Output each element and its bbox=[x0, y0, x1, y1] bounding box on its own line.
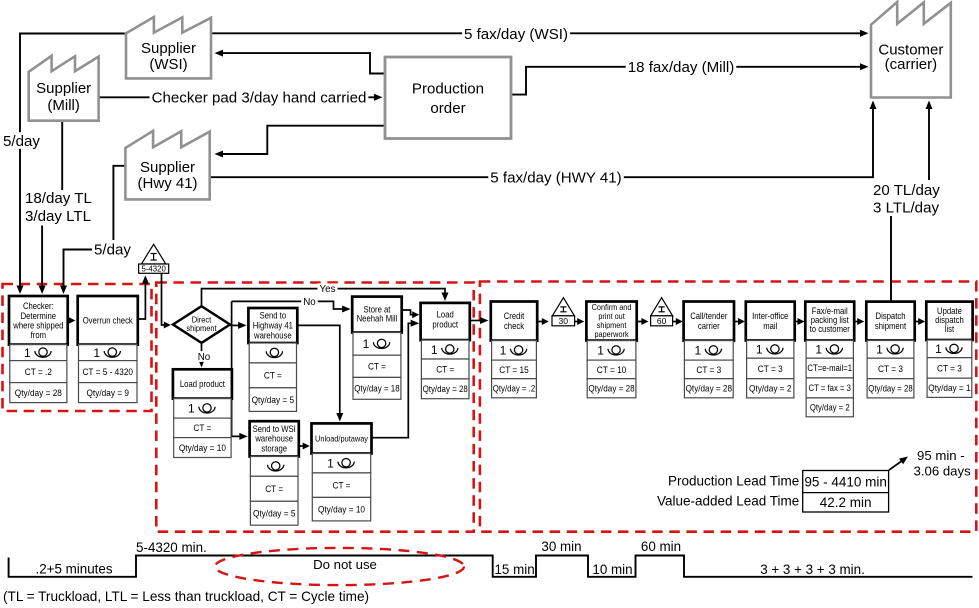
svg-text:check: check bbox=[504, 321, 525, 331]
svg-text:CT = 3: CT = 3 bbox=[937, 363, 962, 374]
svg-text:CT =: CT = bbox=[264, 371, 282, 382]
svg-text:Production Lead Time: Production Lead Time bbox=[668, 474, 799, 489]
svg-text:list: list bbox=[945, 324, 955, 334]
svg-text:1: 1 bbox=[93, 346, 100, 360]
svg-text:Value-added Lead Time: Value-added Lead Time bbox=[657, 494, 799, 509]
svg-text:Load product: Load product bbox=[180, 379, 225, 389]
svg-text:(Mill): (Mill) bbox=[47, 97, 79, 114]
svg-text:18 fax/day (Mill): 18 fax/day (Mill) bbox=[628, 59, 735, 76]
svg-text:.2+5 minutes: .2+5 minutes bbox=[35, 561, 112, 576]
svg-text:Qty/day = 2: Qty/day = 2 bbox=[810, 403, 850, 413]
svg-text:CT = .2: CT = .2 bbox=[25, 367, 52, 378]
svg-text:Send to: Send to bbox=[260, 311, 287, 321]
svg-text:30 min: 30 min bbox=[541, 539, 581, 554]
svg-text:Qty/day = 10: Qty/day = 10 bbox=[179, 443, 226, 454]
svg-text:5/day: 5/day bbox=[94, 241, 131, 258]
svg-text:3 LTL/day: 3 LTL/day bbox=[873, 199, 939, 216]
svg-text:(Hwy 41): (Hwy 41) bbox=[138, 175, 198, 192]
svg-text:mail: mail bbox=[763, 321, 777, 331]
svg-text:5/day: 5/day bbox=[3, 133, 40, 150]
svg-text:storage: storage bbox=[261, 444, 287, 454]
svg-text:CT = 3: CT = 3 bbox=[878, 364, 903, 375]
svg-text:Neehah Mill: Neehah Mill bbox=[357, 314, 398, 324]
svg-text:carrier: carrier bbox=[698, 321, 720, 331]
svg-text:CT =: CT = bbox=[333, 481, 351, 492]
svg-text:Production: Production bbox=[412, 80, 484, 97]
svg-text:1: 1 bbox=[694, 344, 701, 358]
svg-text:(WSI): (WSI) bbox=[149, 56, 187, 73]
svg-text:(carrier): (carrier) bbox=[885, 56, 938, 73]
svg-text:1: 1 bbox=[500, 344, 507, 358]
svg-text:Supplier: Supplier bbox=[141, 40, 196, 57]
svg-text:CT =: CT = bbox=[193, 423, 211, 434]
svg-text:1: 1 bbox=[327, 456, 334, 470]
svg-text:(TL = Truckload, LTL = Less th: (TL = Truckload, LTL = Less than trucklo… bbox=[3, 589, 369, 604]
svg-text:Credit: Credit bbox=[504, 311, 525, 321]
svg-text:20 TL/day: 20 TL/day bbox=[873, 182, 940, 199]
svg-text:1: 1 bbox=[597, 344, 604, 358]
svg-text:CT =: CT = bbox=[368, 362, 386, 373]
svg-text:Qty/day = 18: Qty/day = 18 bbox=[354, 384, 400, 395]
svg-text:Highway 41: Highway 41 bbox=[253, 321, 293, 331]
svg-text:42.2 min: 42.2 min bbox=[820, 495, 872, 510]
svg-text:Qty/day = 28: Qty/day = 28 bbox=[868, 384, 912, 395]
svg-text:15 min: 15 min bbox=[494, 562, 534, 577]
svg-text:5 fax/day (HWY 41): 5 fax/day (HWY 41) bbox=[490, 170, 621, 187]
svg-text:Checker pad 3/day hand carried: Checker pad 3/day hand carried bbox=[152, 90, 367, 107]
svg-text:Qty/day = 28: Qty/day = 28 bbox=[15, 388, 62, 399]
svg-text:Inter-office: Inter-office bbox=[752, 311, 788, 321]
svg-text:product: product bbox=[432, 320, 458, 330]
svg-text:95 - 4410 min: 95 - 4410 min bbox=[804, 474, 887, 489]
svg-text:CT = 15: CT = 15 bbox=[499, 365, 529, 376]
svg-text:Supplier: Supplier bbox=[140, 159, 195, 176]
svg-text:CT = 10: CT = 10 bbox=[597, 365, 627, 376]
svg-text:95 min -: 95 min - bbox=[917, 448, 965, 463]
svg-text:Dispatch: Dispatch bbox=[876, 311, 906, 321]
svg-text:Qty/day = 10: Qty/day = 10 bbox=[318, 505, 365, 516]
svg-text:1: 1 bbox=[815, 343, 822, 357]
svg-text:Determine: Determine bbox=[21, 311, 57, 321]
svg-text:CT = fax = 3: CT = fax = 3 bbox=[809, 383, 851, 393]
svg-text:warehouse: warehouse bbox=[253, 330, 292, 340]
svg-text:1: 1 bbox=[24, 346, 31, 360]
svg-text:to customer: to customer bbox=[810, 324, 850, 334]
svg-text:5-4320: 5-4320 bbox=[142, 264, 167, 273]
svg-text:1: 1 bbox=[363, 337, 370, 351]
svg-text:Send to WSI: Send to WSI bbox=[253, 424, 296, 434]
svg-text:CT = 3: CT = 3 bbox=[696, 365, 721, 376]
svg-text:No: No bbox=[303, 297, 316, 308]
svg-text:CT = 3: CT = 3 bbox=[758, 364, 783, 375]
svg-text:18/day TL: 18/day TL bbox=[25, 190, 92, 207]
svg-text:3 + 3 + 3 + 3 min.: 3 + 3 + 3 + 3 min. bbox=[760, 562, 865, 577]
svg-text:60 min: 60 min bbox=[641, 539, 681, 554]
svg-text:CT = 5 - 4320: CT = 5 - 4320 bbox=[82, 367, 133, 378]
svg-text:Yes: Yes bbox=[320, 284, 336, 295]
svg-text:where shipped: where shipped bbox=[12, 321, 63, 331]
svg-text:Qty/day = 28: Qty/day = 28 bbox=[588, 384, 634, 395]
svg-text:Load: Load bbox=[437, 310, 454, 320]
svg-text:Checker:: Checker: bbox=[23, 301, 54, 311]
svg-text:3/day LTL: 3/day LTL bbox=[25, 208, 91, 225]
svg-text:1: 1 bbox=[876, 343, 883, 357]
svg-text:No: No bbox=[198, 352, 211, 363]
svg-text:Unload/putaway: Unload/putaway bbox=[315, 434, 369, 444]
svg-text:paperwork: paperwork bbox=[595, 329, 630, 339]
svg-text:1: 1 bbox=[188, 402, 195, 416]
svg-text:Supplier: Supplier bbox=[36, 80, 91, 97]
svg-text:1: 1 bbox=[935, 342, 942, 356]
svg-text:shipment: shipment bbox=[186, 323, 217, 333]
svg-text:5-4320 min.: 5-4320 min. bbox=[136, 540, 207, 555]
svg-text:3.06 days: 3.06 days bbox=[914, 464, 972, 479]
svg-text:1: 1 bbox=[431, 343, 438, 357]
svg-text:warehouse: warehouse bbox=[254, 434, 293, 444]
svg-text:10 min: 10 min bbox=[592, 562, 632, 577]
svg-text:CT=e-mail=1: CT=e-mail=1 bbox=[807, 363, 852, 373]
svg-text:CT =: CT = bbox=[265, 484, 283, 495]
svg-text:Qty/day = 28: Qty/day = 28 bbox=[686, 384, 732, 395]
svg-text:CT =: CT = bbox=[436, 364, 454, 375]
svg-text:60: 60 bbox=[657, 316, 667, 326]
svg-text:Qty/day = 5: Qty/day = 5 bbox=[252, 395, 295, 406]
svg-text:shipment: shipment bbox=[875, 321, 907, 331]
svg-text:5 fax/day (WSI): 5 fax/day (WSI) bbox=[464, 26, 568, 43]
svg-text:Overrun check: Overrun check bbox=[83, 316, 134, 326]
svg-text:30: 30 bbox=[559, 316, 569, 326]
svg-text:Qty/day = 1: Qty/day = 1 bbox=[928, 383, 970, 394]
svg-text:from: from bbox=[31, 330, 46, 340]
svg-text:Qty/day = 5: Qty/day = 5 bbox=[253, 509, 296, 520]
svg-text:Do not use: Do not use bbox=[313, 557, 377, 572]
svg-text:Call/tender: Call/tender bbox=[690, 311, 727, 321]
svg-text:Qty/day = 28: Qty/day = 28 bbox=[423, 384, 468, 395]
svg-text:order: order bbox=[430, 100, 465, 117]
svg-text:Qty/day = .2: Qty/day = .2 bbox=[493, 384, 535, 395]
svg-text:Qty/day = 9: Qty/day = 9 bbox=[87, 388, 130, 399]
svg-text:1: 1 bbox=[756, 343, 763, 357]
svg-text:Qty/day = 2: Qty/day = 2 bbox=[749, 384, 792, 395]
